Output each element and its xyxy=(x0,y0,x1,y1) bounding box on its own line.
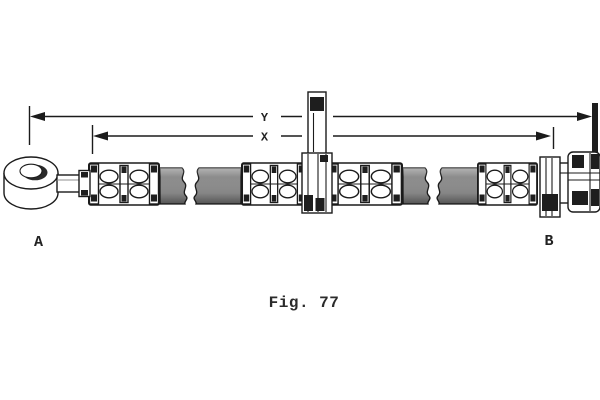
center-mounting-bracket xyxy=(302,92,332,213)
hose-segment-shade xyxy=(437,168,484,204)
hose-segment-shade xyxy=(403,168,430,204)
coil-guard-1 xyxy=(89,163,160,205)
brake-hose-diagram: Y X A B Fig. 77 xyxy=(0,0,600,400)
arrowhead-left-icon xyxy=(93,132,108,141)
clamp-mark xyxy=(316,198,325,211)
clamp-mark xyxy=(304,195,313,211)
coil-guard-4 xyxy=(478,163,538,205)
stem-collar-mark xyxy=(81,190,88,196)
fitting-shadow xyxy=(572,155,584,168)
end-label-a: A xyxy=(34,234,43,251)
bracket-slot xyxy=(310,97,324,111)
fitting-shadow xyxy=(572,191,588,205)
extension-bar-right-y xyxy=(592,103,598,152)
fitting-shadow xyxy=(591,154,599,169)
figure-page: Y X A B Fig. 77 xyxy=(0,0,600,400)
plate-mark xyxy=(542,194,558,211)
dim-label-y: Y xyxy=(261,111,269,125)
stem-collar-mark xyxy=(81,172,88,178)
figure-caption: Fig. 77 xyxy=(269,294,340,312)
coil-guard-2 xyxy=(242,163,307,205)
clamp-mark xyxy=(320,155,328,162)
arrowhead-right-icon xyxy=(536,132,551,141)
arrowhead-right-icon xyxy=(577,112,592,121)
hose-segment-shade xyxy=(194,168,241,204)
dim-label-x: X xyxy=(261,131,269,145)
banjo-stem xyxy=(57,175,81,192)
end-fitting-b xyxy=(540,152,600,217)
hose-segment-shade xyxy=(160,168,187,204)
arrowhead-left-icon xyxy=(30,112,45,121)
banjo-fitting-a xyxy=(4,157,90,209)
fitting-shadow xyxy=(591,189,599,206)
end-label-b: B xyxy=(544,233,553,250)
coil-guard-3 xyxy=(328,163,403,205)
banjo-bore xyxy=(20,164,42,178)
